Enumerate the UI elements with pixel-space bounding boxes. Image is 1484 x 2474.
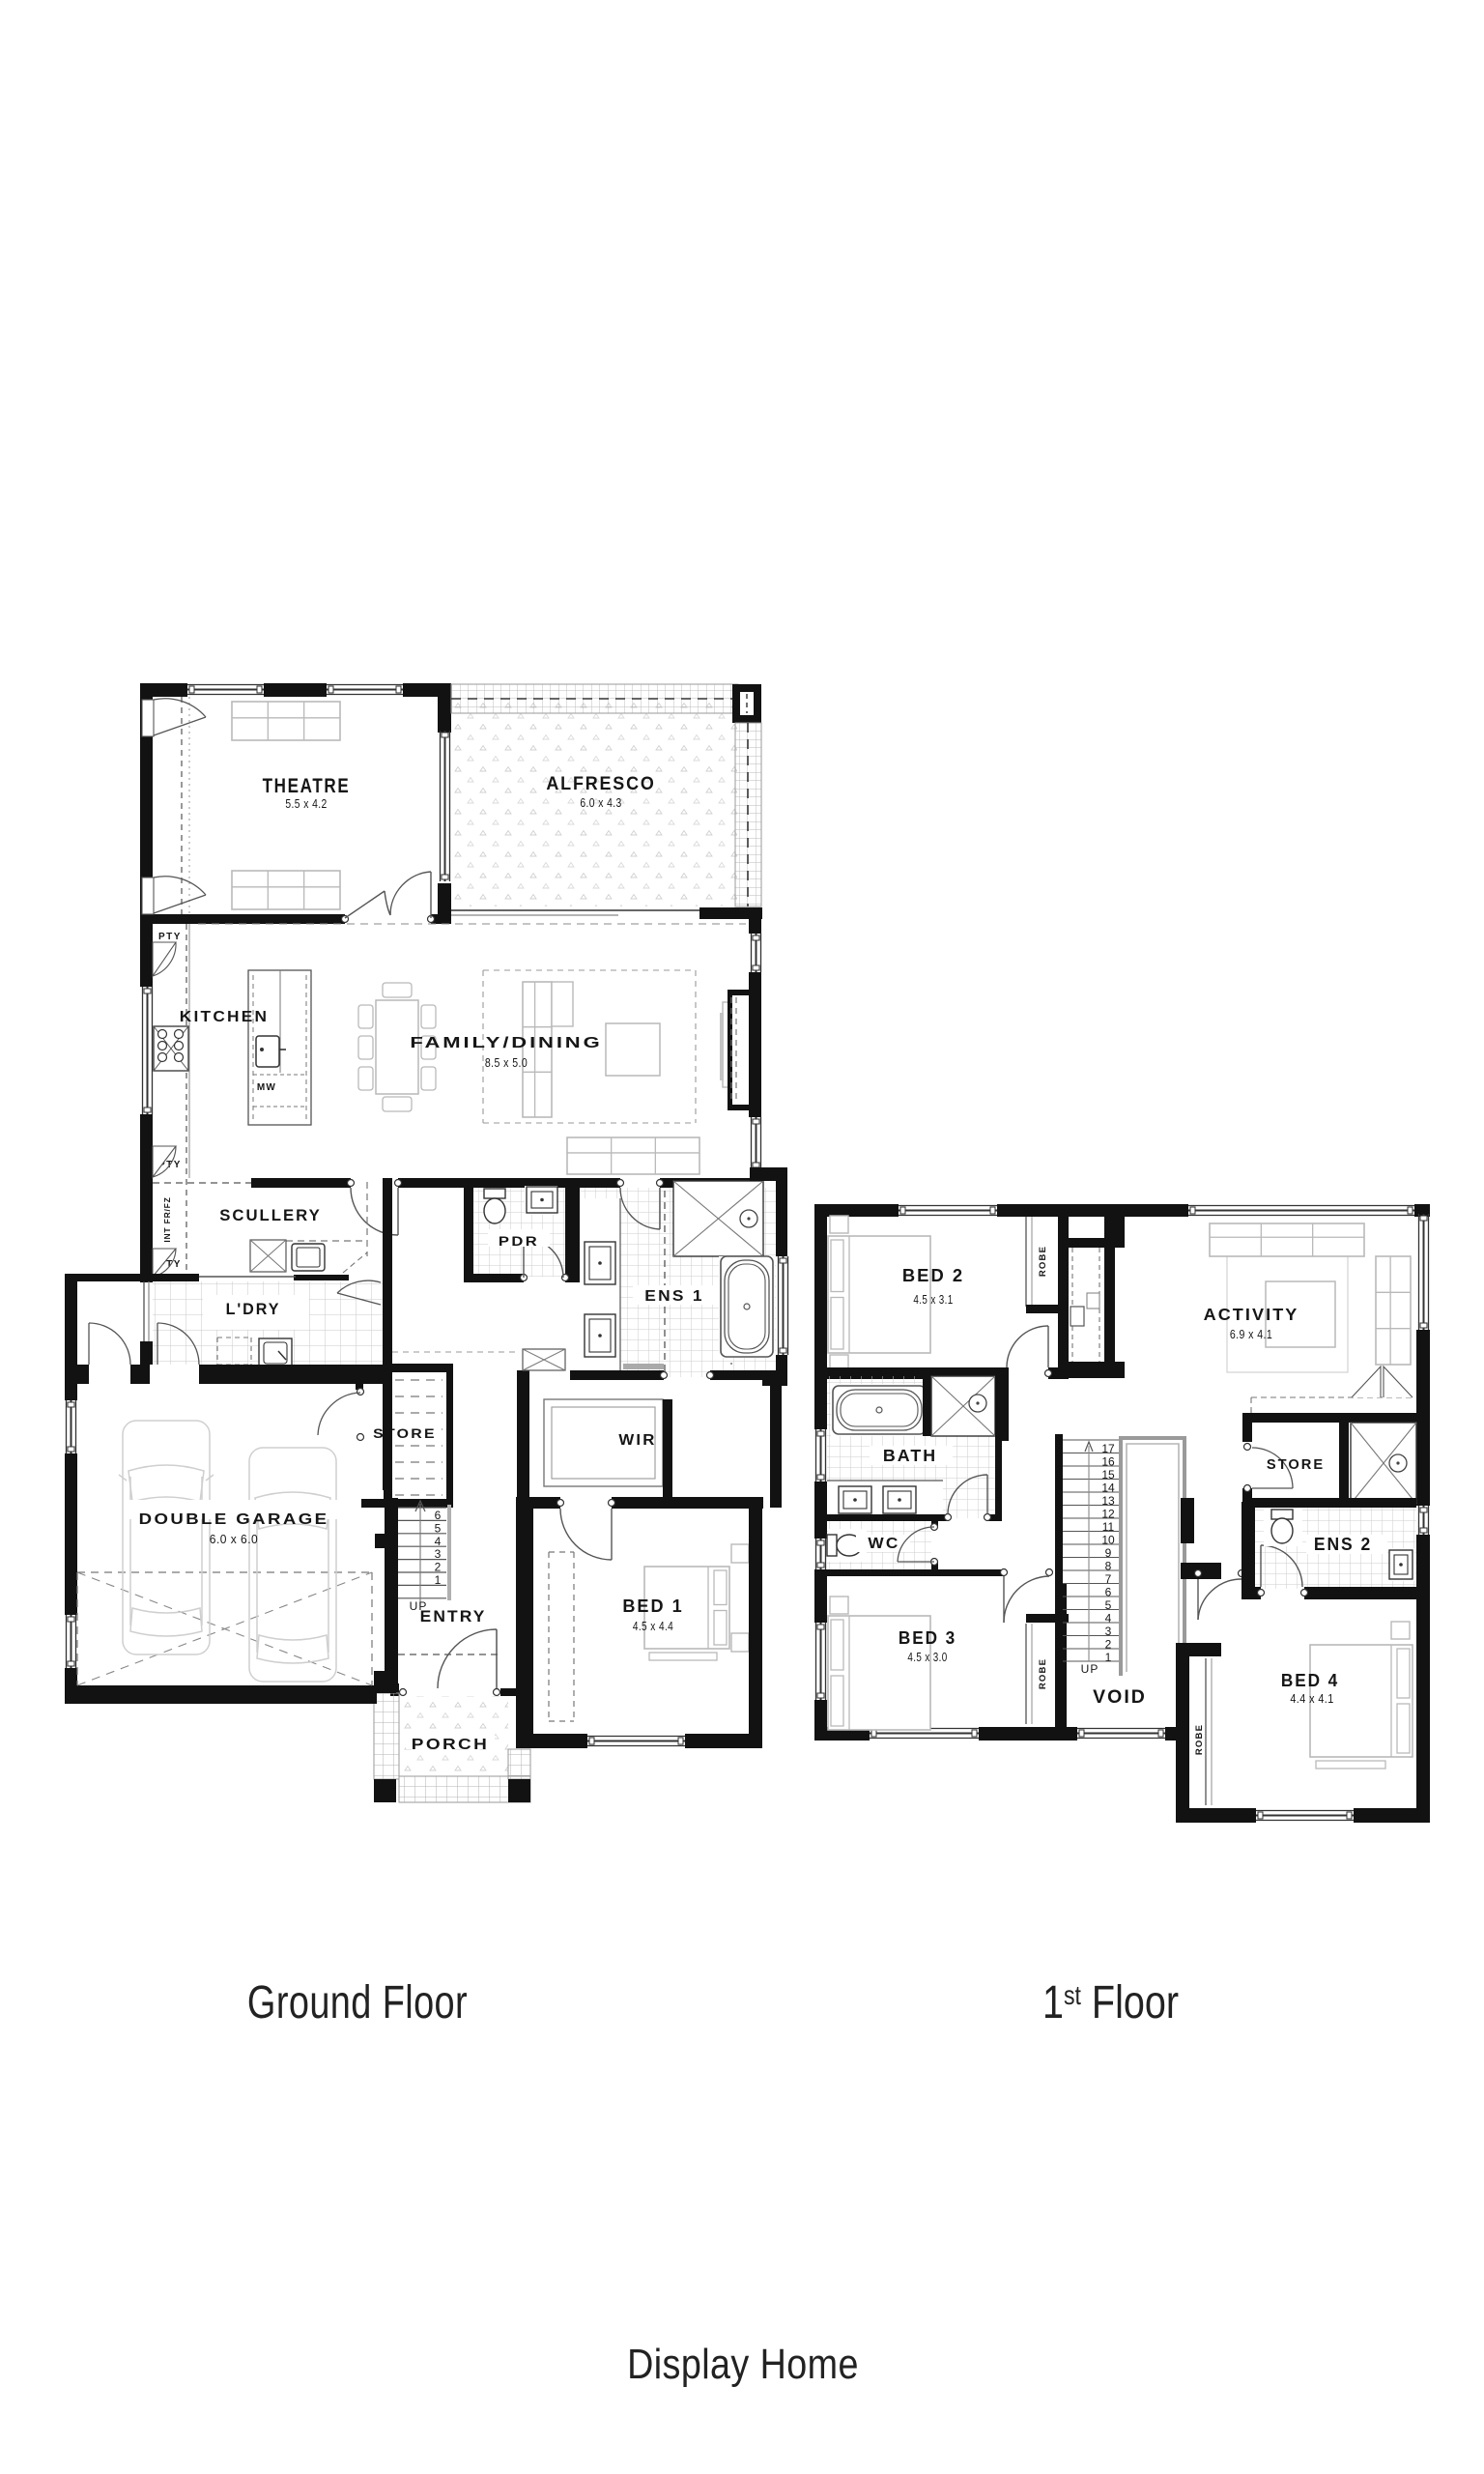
svg-text:3: 3 (1105, 1625, 1112, 1638)
svg-text:11: 11 (1102, 1520, 1115, 1534)
svg-text:STORE: STORE (373, 1426, 437, 1442)
svg-text:VOID: VOID (1093, 1686, 1147, 1708)
svg-text:8: 8 (1105, 1560, 1112, 1573)
svg-text:ALFRESCO: ALFRESCO (546, 772, 655, 793)
svg-text:5: 5 (435, 1521, 442, 1535)
svg-text:5.5 x 4.2: 5.5 x 4.2 (285, 798, 327, 811)
svg-text:6.9 x 4.1: 6.9 x 4.1 (1230, 1329, 1272, 1341)
svg-text:2: 2 (435, 1561, 442, 1574)
svg-text:5: 5 (1105, 1598, 1112, 1612)
svg-text:ENTRY: ENTRY (420, 1607, 487, 1625)
svg-text:FAMILY/DINING: FAMILY/DINING (410, 1035, 602, 1051)
svg-text:4: 4 (435, 1535, 442, 1548)
svg-text:4.5 x 4.4: 4.5 x 4.4 (633, 1621, 673, 1633)
svg-text:2: 2 (1105, 1638, 1112, 1652)
svg-text:BATH: BATH (883, 1446, 937, 1465)
svg-text:1st Floor: 1st Floor (1042, 1976, 1179, 2028)
svg-text:BED 1: BED 1 (622, 1597, 683, 1616)
svg-text:UP: UP (1081, 1662, 1099, 1676)
svg-text:6.0 x 4.3: 6.0 x 4.3 (580, 797, 621, 810)
svg-text:16: 16 (1101, 1455, 1115, 1469)
svg-text:8.5 x 5.0: 8.5 x 5.0 (485, 1057, 528, 1070)
svg-text:10: 10 (1101, 1534, 1115, 1547)
svg-text:WIR: WIR (618, 1432, 656, 1449)
svg-text:Ground Floor: Ground Floor (247, 1977, 468, 2028)
svg-text:ENS 2: ENS 2 (1314, 1535, 1372, 1554)
svg-text:9: 9 (1105, 1546, 1112, 1560)
svg-text:THEATRE: THEATRE (263, 776, 351, 798)
svg-text:7: 7 (1105, 1572, 1112, 1586)
svg-text:SCULLERY: SCULLERY (219, 1206, 322, 1224)
svg-text:Display Home: Display Home (627, 2340, 859, 2387)
svg-text:4.5 x 3.0: 4.5 x 3.0 (907, 1652, 947, 1664)
svg-text:BED 2: BED 2 (902, 1265, 964, 1285)
svg-text:BED 4: BED 4 (1281, 1671, 1339, 1690)
svg-text:INT FR/FZ: INT FR/FZ (162, 1196, 172, 1242)
svg-text:L'DRY: L'DRY (226, 1301, 281, 1318)
svg-text:14: 14 (1101, 1482, 1115, 1495)
svg-text:1: 1 (1105, 1651, 1112, 1664)
svg-text:4.5 x 3.1: 4.5 x 3.1 (913, 1294, 953, 1307)
svg-text:15: 15 (1101, 1468, 1115, 1482)
svg-text:ROBE: ROBE (1038, 1658, 1048, 1689)
svg-text:ROBE: ROBE (1038, 1246, 1048, 1277)
svg-text:4: 4 (1105, 1612, 1112, 1625)
svg-text:17: 17 (1101, 1442, 1115, 1455)
svg-text:KITCHEN: KITCHEN (180, 1009, 269, 1025)
svg-text:BED 3: BED 3 (899, 1628, 956, 1648)
svg-text:ENS 1: ENS 1 (644, 1288, 704, 1305)
svg-text:6: 6 (435, 1509, 442, 1522)
svg-text:STORE: STORE (1267, 1457, 1325, 1473)
svg-text:3: 3 (435, 1547, 442, 1561)
svg-text:ACTIVITY: ACTIVITY (1204, 1305, 1299, 1324)
svg-text:PDR: PDR (499, 1234, 539, 1249)
svg-text:PORCH: PORCH (412, 1735, 489, 1752)
svg-text:6: 6 (1105, 1586, 1112, 1599)
svg-text:13: 13 (1101, 1494, 1115, 1508)
svg-text:PTY: PTY (158, 932, 182, 942)
svg-text:WC: WC (868, 1536, 899, 1552)
svg-text:12: 12 (1101, 1508, 1115, 1521)
svg-text:ROBE: ROBE (1194, 1724, 1205, 1755)
svg-text:DOUBLE GARAGE: DOUBLE GARAGE (139, 1511, 329, 1528)
svg-text:MW: MW (257, 1082, 276, 1093)
svg-text:6.0 x 6.0: 6.0 x 6.0 (210, 1533, 258, 1546)
svg-text:1: 1 (435, 1573, 442, 1587)
svg-text:4.4 x 4.1: 4.4 x 4.1 (1290, 1692, 1333, 1706)
